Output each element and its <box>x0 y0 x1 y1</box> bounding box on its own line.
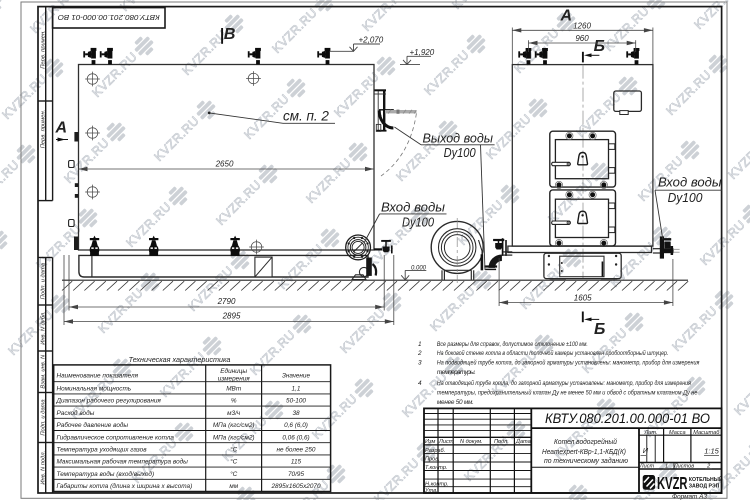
svg-text:Лист: Лист <box>639 464 655 470</box>
svg-text:КОТЕЛЬНЫЙ: КОТЕЛЬНЫЙ <box>689 475 723 483</box>
svg-text:Н.контр.: Н.контр. <box>425 481 449 487</box>
svg-text:температуры.: температуры. <box>437 369 476 376</box>
svg-text:менее 50 мм.: менее 50 мм. <box>437 399 474 406</box>
svg-text:Единицы: Единицы <box>220 367 247 375</box>
svg-text:МВт: МВт <box>226 386 242 393</box>
svg-text:Масштаб: Масштаб <box>693 430 720 436</box>
svg-text:Температура воды (вход/выход): Температура воды (вход/выход) <box>57 470 155 478</box>
svg-text:Подп. и дата: Подп. и дата <box>40 262 46 299</box>
svg-text:+1,920: +1,920 <box>410 48 435 57</box>
svg-text:Подп. и дата: Подп. и дата <box>40 399 46 436</box>
svg-text:Рабочее давление воды: Рабочее давление воды <box>57 421 129 429</box>
svg-text:0,06 (0,6): 0,06 (0,6) <box>282 434 309 441</box>
svg-text:КВТУ.080.201.00.000-01 ВО: КВТУ.080.201.00.000-01 ВО <box>545 410 710 426</box>
svg-text:Дата: Дата <box>515 439 531 445</box>
svg-text:м3/ч: м3/ч <box>227 410 241 417</box>
svg-text:°С: °С <box>230 446 238 454</box>
svg-text:Котел водогрейный: Котел водогрейный <box>554 438 617 446</box>
svg-text:2895х1605х2070: 2895х1605х2070 <box>270 483 320 490</box>
svg-text:+2,070: +2,070 <box>359 36 384 45</box>
svg-text:Формат А3: Формат А3 <box>672 493 707 500</box>
svg-text:ЗАВОД РЭП: ЗАВОД РЭП <box>689 483 720 489</box>
svg-text:Перв. примен.: Перв. примен. <box>40 110 46 149</box>
svg-text:°С: °С <box>230 470 238 478</box>
svg-text:измерения: измерения <box>218 375 251 382</box>
svg-text:N докум.: N докум. <box>460 439 483 445</box>
svg-text:Перв. примен.: Перв. примен. <box>40 30 46 69</box>
svg-text:Пров.: Пров. <box>425 456 440 462</box>
svg-text:Масса: Масса <box>669 430 686 436</box>
svg-text:KVZR: KVZR <box>657 473 688 493</box>
svg-text:4: 4 <box>418 380 422 387</box>
svg-text:Dу100: Dу100 <box>444 145 477 160</box>
svg-text:Dу100: Dу100 <box>402 214 435 229</box>
svg-text:1605: 1605 <box>574 293 592 302</box>
svg-text:Вход воды: Вход воды <box>658 174 722 189</box>
svg-text:не более 250: не более 250 <box>276 446 315 454</box>
svg-text:Гидравлическое сопротивление к: Гидравлическое сопротивление котла <box>57 433 175 441</box>
svg-text:Расход воды: Расход воды <box>57 409 95 417</box>
svg-text:мм: мм <box>229 483 238 490</box>
svg-text:На подводящей трубе котла, до: На подводящей трубе котла, до запорной а… <box>437 358 700 366</box>
svg-text:115: 115 <box>291 459 302 466</box>
svg-text:Б: Б <box>594 38 605 55</box>
svg-text:1:15: 1:15 <box>704 446 719 455</box>
svg-text:38: 38 <box>292 410 300 417</box>
svg-text:Разраб.: Разраб. <box>425 448 445 454</box>
svg-text:по техническому заданию: по техническому заданию <box>544 457 629 465</box>
svg-text:КВТУ.080.201.00.000-01 ВО: КВТУ.080.201.00.000-01 ВО <box>58 13 160 22</box>
svg-text:Значение: Значение <box>282 373 310 380</box>
svg-text:Взам. инв. N: Взам. инв. N <box>40 354 46 389</box>
svg-text:%: % <box>231 398 237 405</box>
svg-text:Вход воды: Вход воды <box>381 200 445 215</box>
svg-text:2: 2 <box>417 350 422 357</box>
svg-text:0.000: 0.000 <box>411 265 427 271</box>
svg-text:Инв. N подл.: Инв. N подл. <box>40 451 46 485</box>
svg-text:Т.контр.: Т.контр. <box>425 465 448 471</box>
svg-text:А: А <box>560 7 573 24</box>
svg-text:Диапазон рабочего регулировани: Диапазон рабочего регулирования <box>56 397 162 405</box>
svg-text:Лист: Лист <box>438 439 454 445</box>
svg-text:Все размеры для справок, допус: Все размеры для справок, допустимое откл… <box>437 340 588 348</box>
svg-text:3: 3 <box>418 359 422 366</box>
svg-text:Изм: Изм <box>425 439 436 445</box>
svg-text:Габариты котла (длина х ширина: Габариты котла (длина х ширина х высота) <box>57 482 193 490</box>
svg-text:А: А <box>55 119 68 136</box>
svg-text:2790: 2790 <box>217 297 236 306</box>
svg-text:И: И <box>643 446 649 455</box>
svg-text:50-100: 50-100 <box>286 398 306 405</box>
svg-text:В: В <box>224 26 236 43</box>
svg-text:Неатexpert-КВр-1,1-КБД(К): Неатexpert-КВр-1,1-КБД(К) <box>542 449 626 456</box>
svg-text:1,1: 1,1 <box>292 386 301 393</box>
svg-text:Утв.: Утв. <box>424 488 438 494</box>
svg-text:1: 1 <box>418 341 422 348</box>
svg-text:Техническая характеристика: Техническая характеристика <box>129 355 231 364</box>
svg-text:Инв. N дубл.: Инв. N дубл. <box>40 311 46 345</box>
svg-text:Dу100: Dу100 <box>668 190 704 205</box>
svg-text:Максимальная рабочая температу: Максимальная рабочая температура воды <box>57 458 189 466</box>
svg-text:Б: Б <box>594 321 605 338</box>
svg-text:МПа (кгс/см2): МПа (кгс/см2) <box>213 422 255 429</box>
svg-text:Листов: Листов <box>673 464 694 470</box>
svg-text:Номинальная мощность: Номинальная мощность <box>57 386 132 393</box>
svg-text:960: 960 <box>575 34 589 43</box>
svg-text:МПа (кгс/см2): МПа (кгс/см2) <box>213 434 255 441</box>
svg-text:Выход воды: Выход воды <box>423 130 494 145</box>
svg-text:На отводящей трубе котла, до з: На отводящей трубе котла, до запорной ар… <box>437 379 691 387</box>
svg-text:На боковой стенке котла в обла: На боковой стенке котла в области топочн… <box>437 349 669 357</box>
svg-text:Подп.: Подп. <box>494 439 509 445</box>
svg-text:см. п. 2: см. п. 2 <box>283 109 329 124</box>
svg-text:0,6 (6,0): 0,6 (6,0) <box>284 422 308 429</box>
svg-text:°С: °С <box>230 458 238 466</box>
svg-text:70/95: 70/95 <box>288 471 304 478</box>
svg-text:2895: 2895 <box>222 312 241 321</box>
svg-text:Лит.: Лит. <box>643 430 657 436</box>
svg-text:1260: 1260 <box>573 22 591 31</box>
svg-text:Наименование показателя: Наименование показателя <box>57 373 139 380</box>
svg-text:2650: 2650 <box>215 159 234 168</box>
svg-text:температуры, предохранительный: температуры, предохранительный клапан Ду… <box>437 389 698 397</box>
svg-text:Температура уходящих газов: Температура уходящих газов <box>57 446 148 454</box>
